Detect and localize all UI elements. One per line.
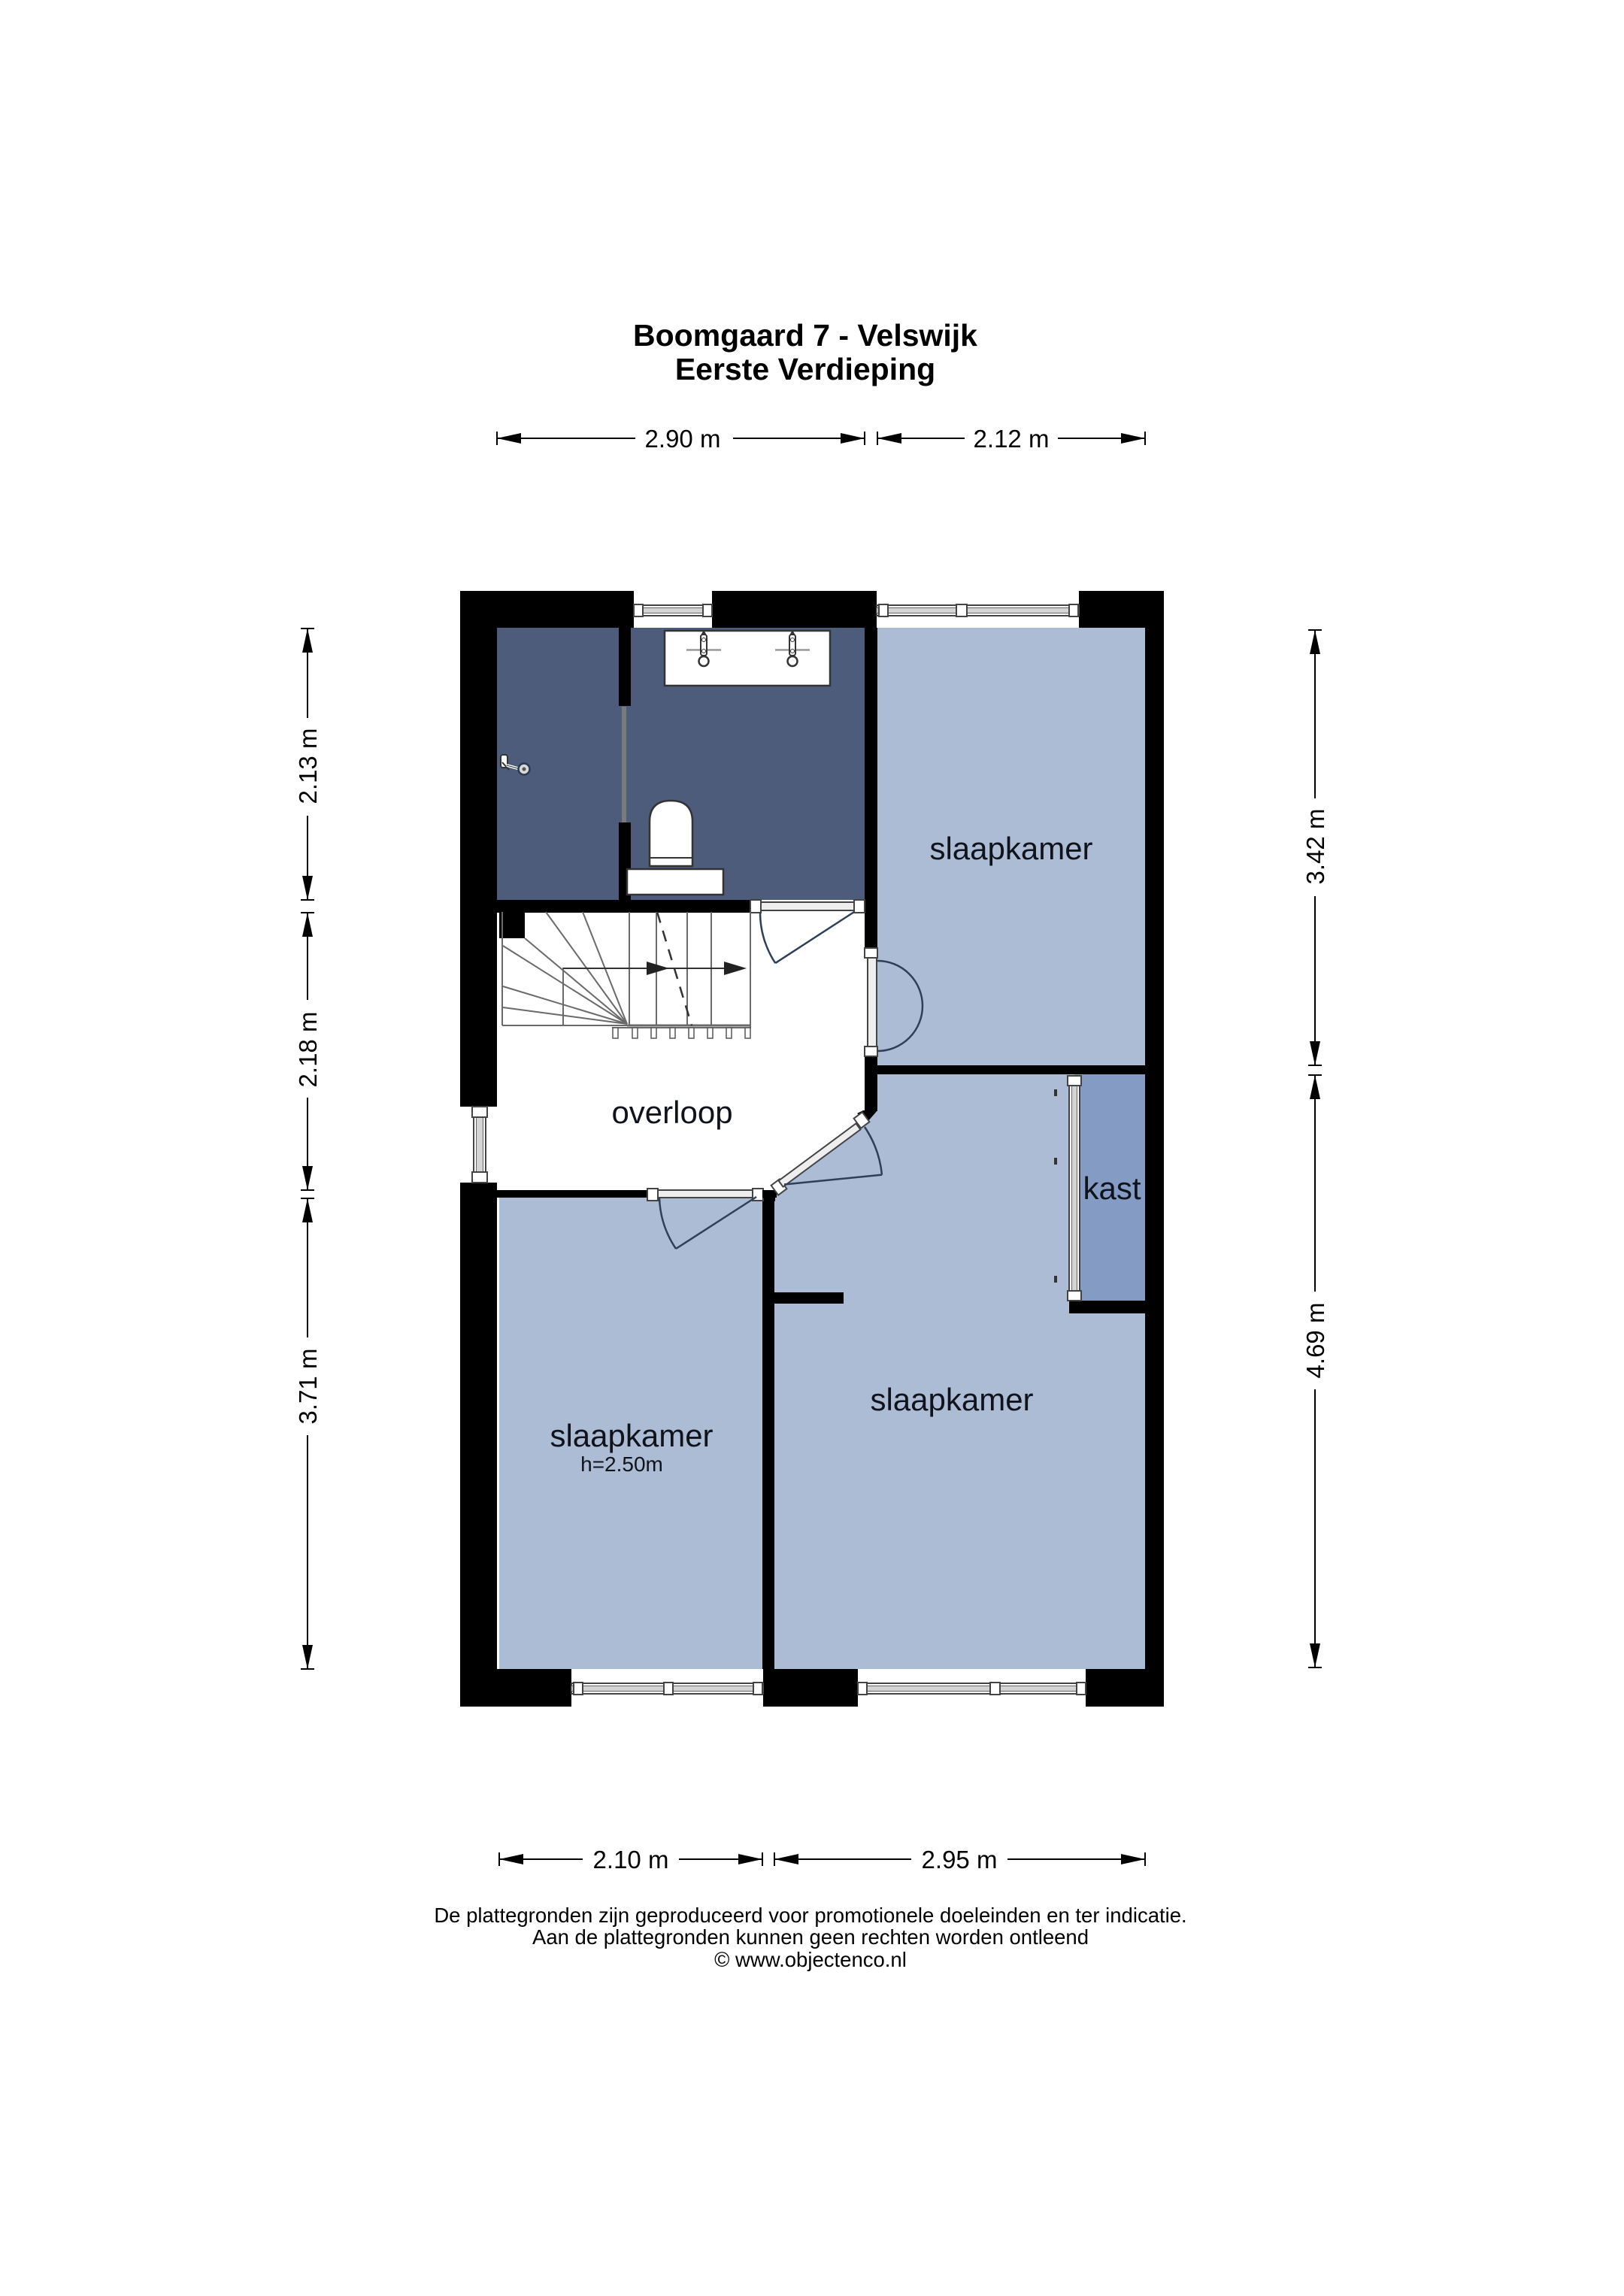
svg-text:2.13 m: 2.13 m [294,728,322,804]
svg-text:© www.objectenco.nl: © www.objectenco.nl [714,1948,907,1971]
svg-text:2.12 m: 2.12 m [974,425,1050,453]
svg-text:slaapkamer: slaapkamer [929,831,1092,866]
svg-text:2.10 m: 2.10 m [593,1846,669,1873]
svg-text:slaapkamer: slaapkamer [550,1418,713,1453]
svg-text:De plattegronden zijn geproduc: De plattegronden zijn geproduceerd voor … [434,1904,1186,1927]
svg-text:Aan de plattegronden kunnen ge: Aan de plattegronden kunnen geen rechten… [532,1925,1089,1949]
svg-text:kast: kast [1083,1171,1141,1206]
svg-text:Boomgaard 7 - Velswijk: Boomgaard 7 - Velswijk [633,318,977,353]
svg-text:3.42 m: 3.42 m [1301,809,1329,885]
svg-text:2.18 m: 2.18 m [294,1012,322,1088]
svg-text:2.90 m: 2.90 m [645,425,721,453]
svg-text:overloop: overloop [611,1095,732,1130]
svg-text:Eerste Verdieping: Eerste Verdieping [675,352,935,386]
svg-text:4.69 m: 4.69 m [1301,1303,1329,1379]
svg-text:3.71 m: 3.71 m [294,1349,322,1425]
svg-text:h=2.50m: h=2.50m [580,1452,663,1476]
svg-text:slaapkamer: slaapkamer [870,1382,1033,1417]
svg-text:2.95 m: 2.95 m [922,1846,998,1873]
